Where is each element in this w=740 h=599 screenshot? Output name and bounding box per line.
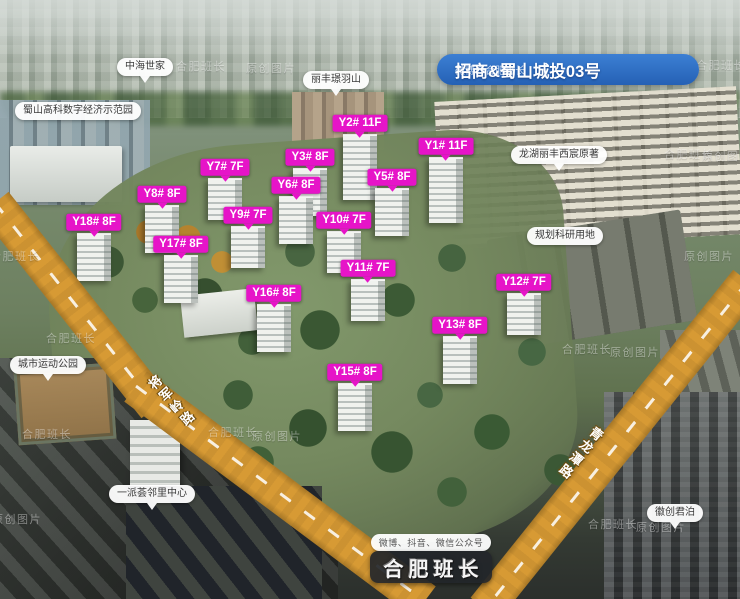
title-banner: 招商&蜀山城投03号 微博@合肥班长 xyxy=(437,54,699,85)
building-label-y11: Y11# 7F xyxy=(341,260,396,277)
landmark-zhonghai-shijia: 中海世家 xyxy=(117,58,173,76)
label-layer: Y1# 11FY2# 11FY3# 8FY5# 8FY6# 8FY7# 7FY8… xyxy=(0,0,740,599)
landmark-shushan-gaoke: 蜀山高科数字经济示范园 xyxy=(15,102,141,120)
landmark-sports-park: 城市运动公园 xyxy=(10,356,86,374)
building-label-y13: Y13# 8F xyxy=(432,317,487,334)
building-label-y5: Y5# 8F xyxy=(367,169,416,186)
building-label-y8: Y8# 8F xyxy=(137,186,186,203)
aerial-render-annotated: 将军岭路 青龙潭路 合肥班长原创图片合肥班长合肥班长原创图片合肥班长原创图片合肥… xyxy=(0,0,740,599)
brand-pill: 合肥班长 xyxy=(370,551,492,583)
building-label-y1: Y1# 11F xyxy=(419,138,474,155)
building-label-y7: Y7# 7F xyxy=(200,159,249,176)
building-label-y12: Y12# 7F xyxy=(496,274,551,291)
building-label-y10: Y10# 7F xyxy=(316,212,371,229)
landmark-research-land: 规划科研用地 xyxy=(527,227,603,245)
banner-subtitle: 微博@合肥班长 xyxy=(455,62,525,77)
brand-text: 合肥班长 xyxy=(379,553,484,582)
building-label-y18: Y18# 8F xyxy=(66,214,121,231)
landmark-huichuang-junbo: 徽创君泊 xyxy=(647,504,703,522)
building-label-y15: Y15# 8F xyxy=(327,364,382,381)
social-channels-text: 微博、抖音、微信公众号 xyxy=(379,536,484,549)
building-label-y3: Y3# 8F xyxy=(285,149,334,166)
landmark-yipaihui-center: 一派荟邻里中心 xyxy=(109,485,195,503)
landmark-lifeng-jingyushan: 丽丰璟羽山 xyxy=(303,71,369,89)
social-channels-pill: 微博、抖音、微信公众号 xyxy=(371,534,491,551)
building-label-y16: Y16# 8F xyxy=(246,285,301,302)
building-label-y17: Y17# 8F xyxy=(153,236,208,253)
building-label-y6: Y6# 8F xyxy=(271,177,320,194)
building-label-y9: Y9# 7F xyxy=(223,207,272,224)
landmark-longhu-xichen: 龙湖丽丰西宸原著 xyxy=(511,146,607,164)
building-label-y2: Y2# 11F xyxy=(333,115,388,132)
